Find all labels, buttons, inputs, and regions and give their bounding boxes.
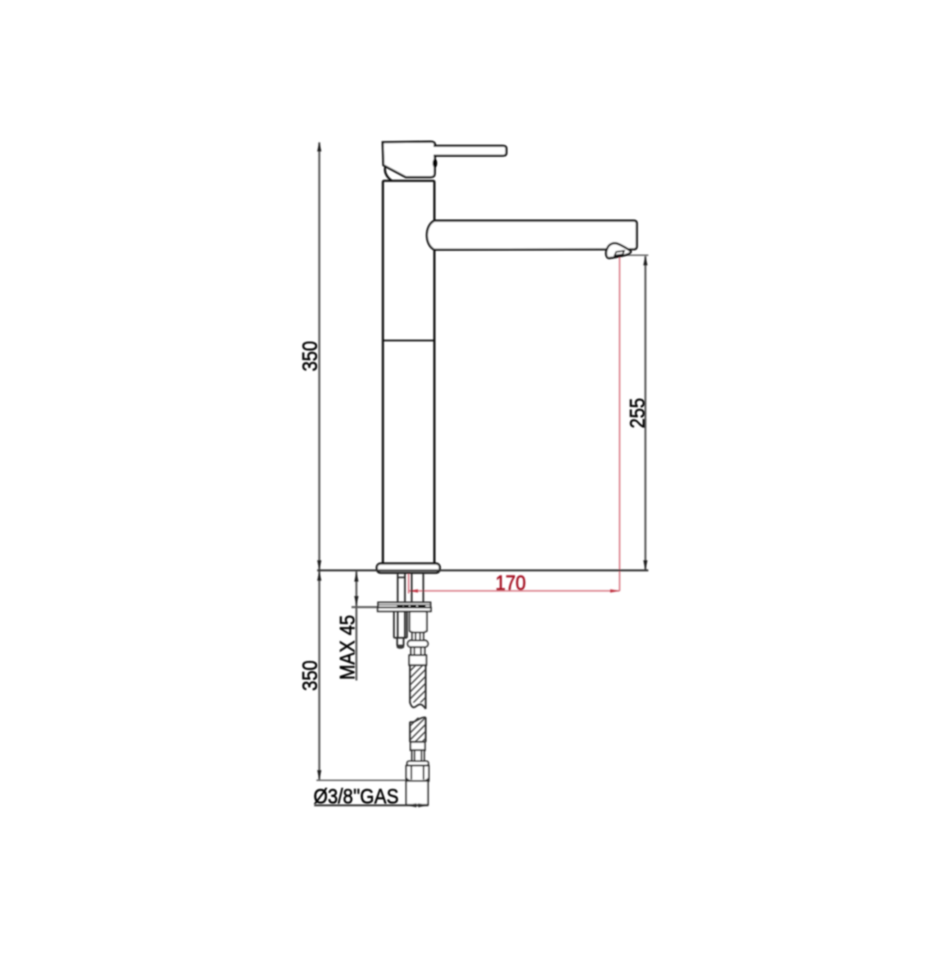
svg-text:350: 350 bbox=[298, 341, 322, 371]
svg-text:Ø3/8''GAS: Ø3/8''GAS bbox=[314, 785, 399, 809]
svg-text:MAX 45: MAX 45 bbox=[336, 615, 360, 680]
svg-text:255: 255 bbox=[626, 398, 650, 428]
svg-text:170: 170 bbox=[495, 572, 525, 596]
svg-text:350: 350 bbox=[299, 660, 323, 690]
